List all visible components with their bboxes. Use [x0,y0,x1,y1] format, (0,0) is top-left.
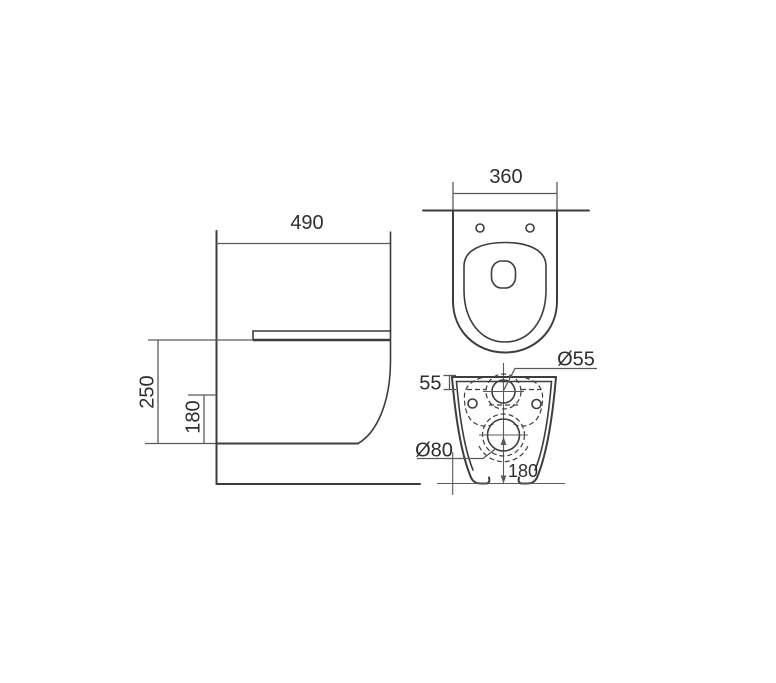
body-outline-top-view [453,211,557,353]
dim-side-depth-label: 490 [290,212,323,234]
hinge-hole-right [526,224,534,232]
rear-view: 55 Ø55 Ø80 180 [415,349,597,496]
dim-rear-inlet-offset-label: 55 [419,373,441,395]
arrow-180-up [501,437,507,446]
top-view: 360 [423,166,589,353]
body-front-edge [358,232,391,444]
technical-drawing-page: 490 250 180 360 [0,0,776,683]
dim-rear-outlet-diameter-label: Ø80 [415,440,453,462]
dim-side-height-label: 250 [137,375,159,408]
dim-rear-inlet-diameter-label: Ø55 [557,349,595,371]
bowl-outline [464,243,546,343]
toilet-dimension-drawing: 490 250 180 360 [0,0,776,683]
hinge-hole-left [476,224,484,232]
side-view: 490 250 180 [137,212,421,484]
dim-top-width-label: 360 [489,166,522,188]
dim-rear-outlet-height-label: 180 [508,461,538,481]
flush-opening [492,261,516,288]
dim-side-outlet-height-label: 180 [183,400,205,433]
fixing-hole-left [468,399,477,408]
arrow-180-down [501,476,507,484]
fixing-hole-right [532,400,541,409]
